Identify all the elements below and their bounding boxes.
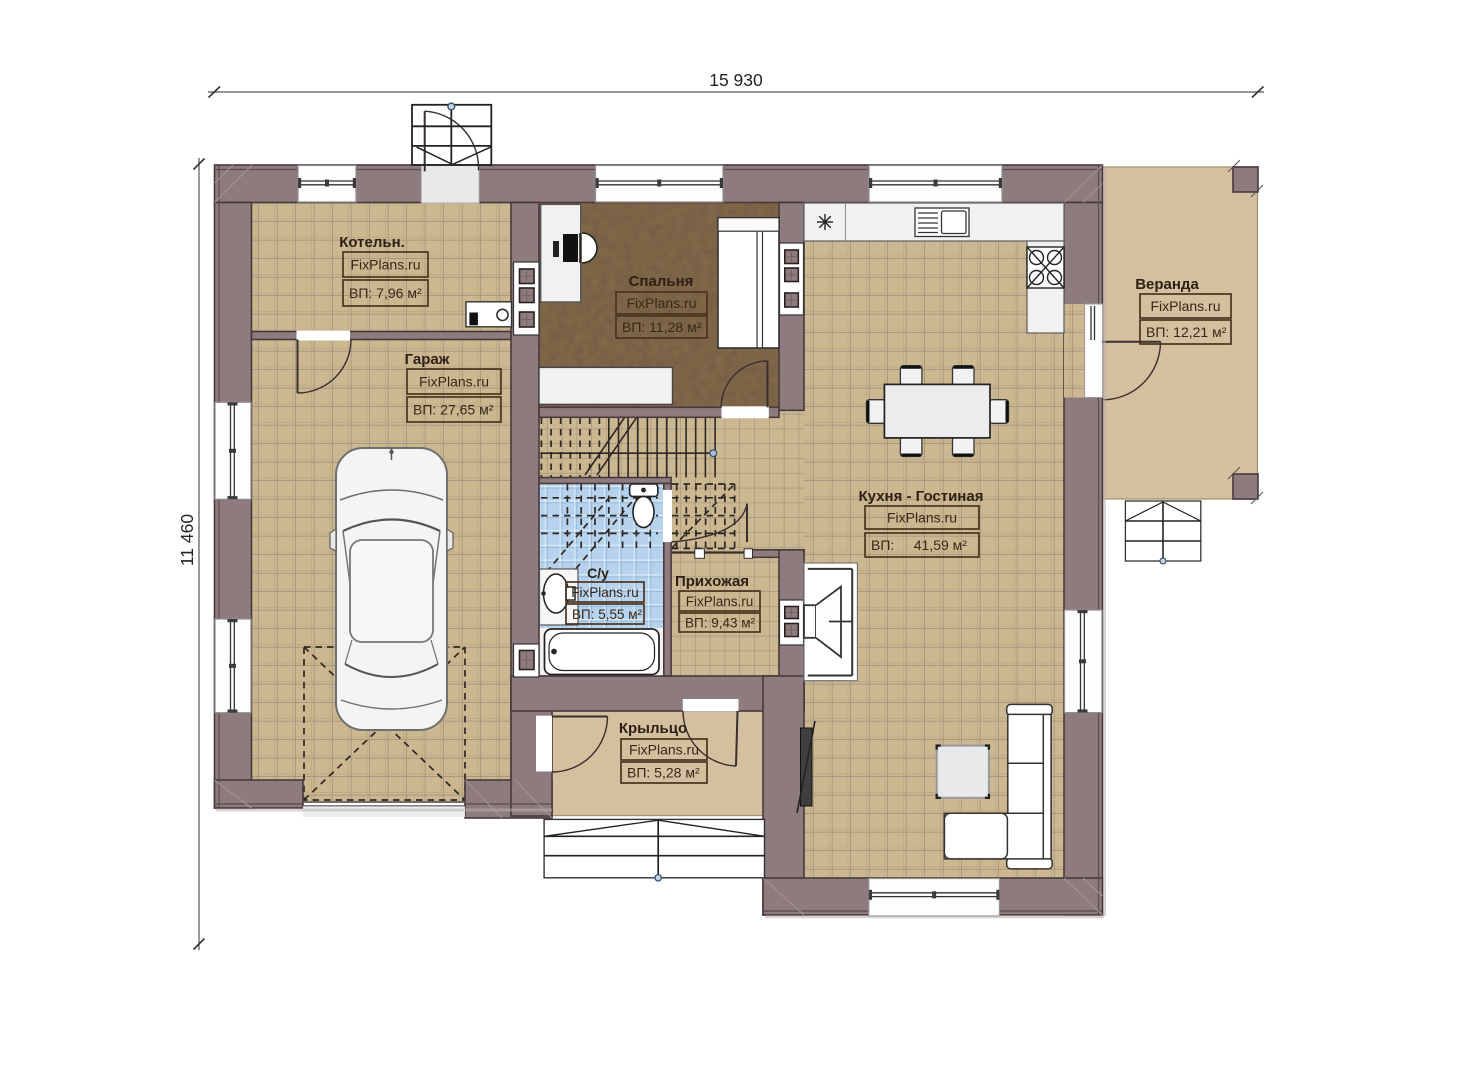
- svg-text:Спальня: Спальня: [629, 273, 694, 290]
- svg-text:Веранда: Веранда: [1135, 276, 1199, 293]
- svg-text:Кухня - Гостиная: Кухня - Гостиная: [859, 488, 984, 505]
- svg-text:ВП: 9,43 м²: ВП: 9,43 м²: [685, 615, 756, 630]
- svg-text:FixPlans.ru: FixPlans.ru: [1150, 298, 1220, 314]
- svg-text:Крыльцо: Крыльцо: [619, 720, 687, 737]
- svg-text:Гараж: Гараж: [405, 351, 450, 368]
- svg-text:FixPlans.ru: FixPlans.ru: [686, 594, 754, 609]
- svg-text:15 930: 15 930: [709, 70, 763, 90]
- svg-text:FixPlans.ru: FixPlans.ru: [419, 374, 489, 390]
- svg-text:Прихожая: Прихожая: [675, 573, 749, 590]
- svg-text:ВП: 5,28 м²: ВП: 5,28 м²: [627, 765, 700, 781]
- svg-text:FixPlans.ru: FixPlans.ru: [626, 295, 696, 311]
- svg-text:ВП: 7,96 м²: ВП: 7,96 м²: [349, 285, 422, 301]
- svg-text:С/у: С/у: [587, 565, 609, 581]
- svg-text:FixPlans.ru: FixPlans.ru: [887, 510, 957, 526]
- svg-text:11 460: 11 460: [177, 514, 197, 566]
- svg-text:FixPlans.ru: FixPlans.ru: [571, 585, 639, 600]
- svg-text:ВП: 11,28 м²: ВП: 11,28 м²: [622, 319, 702, 335]
- svg-text:ВП: 27,65 м²: ВП: 27,65 м²: [413, 402, 494, 418]
- svg-text:FixPlans.ru: FixPlans.ru: [350, 257, 420, 273]
- svg-text:ВП: 12,21 м²: ВП: 12,21 м²: [1146, 324, 1227, 340]
- svg-text:ВП: 5,55 м²: ВП: 5,55 м²: [572, 607, 643, 622]
- svg-text:FixPlans.ru: FixPlans.ru: [629, 742, 699, 758]
- svg-text:ВП: 41,59 м²: ВП: 41,59 м²: [871, 537, 967, 553]
- svg-text:Котельн.: Котельн.: [339, 234, 405, 251]
